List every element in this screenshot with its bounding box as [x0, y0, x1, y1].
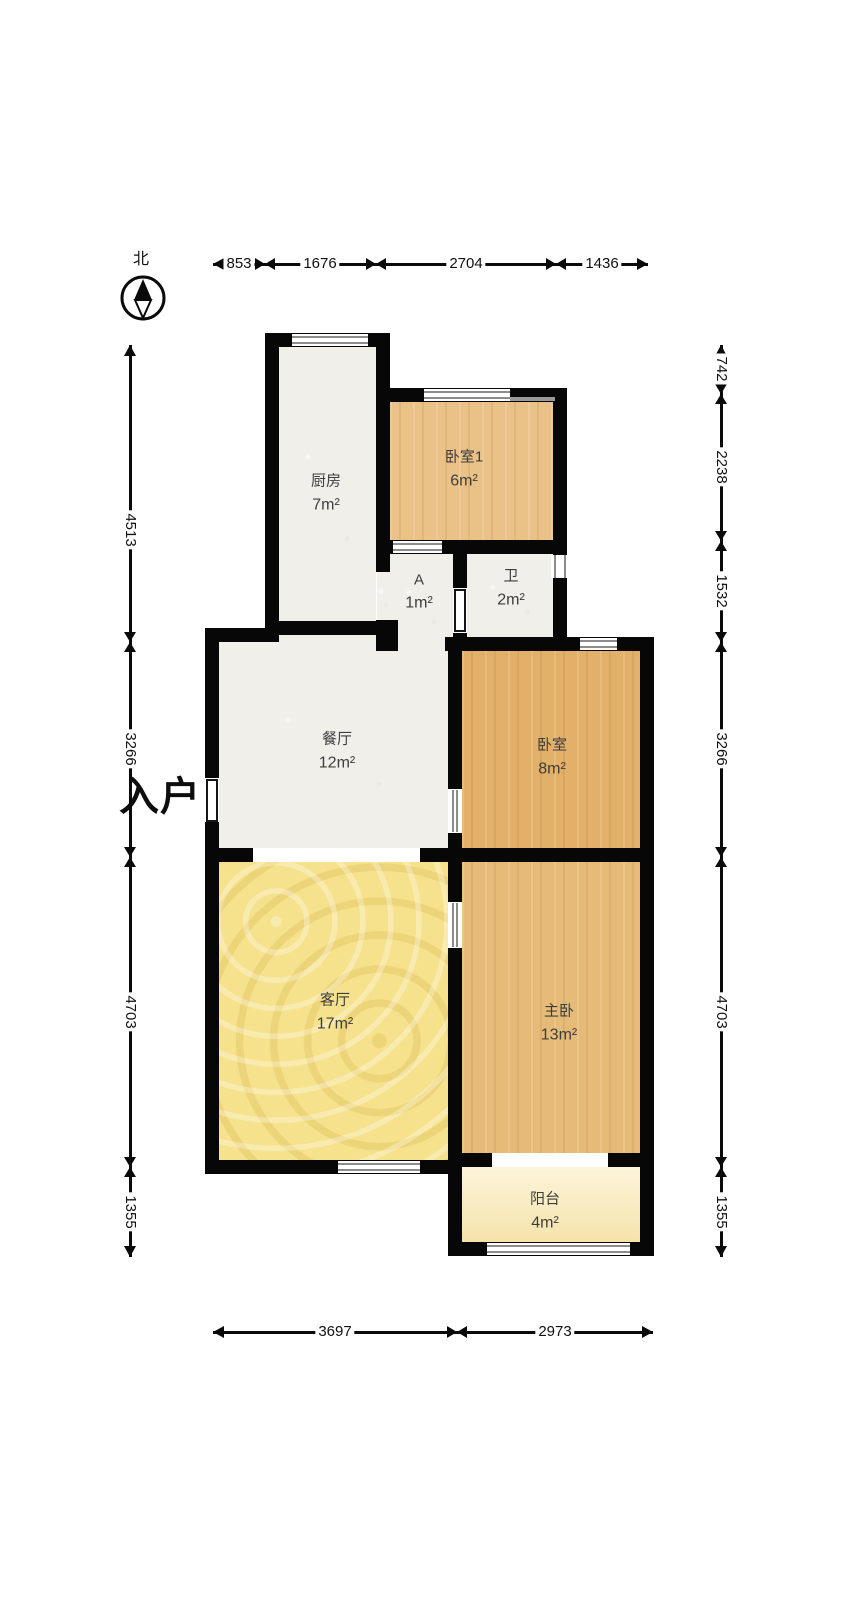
room-area: 1m²: [405, 595, 433, 613]
dim-label: 4703: [121, 992, 139, 1031]
room-name: 餐厅: [319, 728, 355, 749]
dim-tick-icon: [124, 642, 136, 652]
dim-tick-icon: [715, 394, 727, 404]
room-name: 主卧: [541, 1000, 577, 1021]
room-area: 17m²: [317, 1016, 353, 1034]
room-label-hall-a: A 1m²: [405, 572, 433, 613]
room-area: 12m²: [319, 755, 355, 773]
room-label-dining: 餐厅 12m²: [319, 728, 355, 773]
arrow-icon: [213, 258, 224, 270]
room-name: 客厅: [317, 989, 353, 1010]
room-name: 厨房: [311, 470, 341, 491]
arrow-icon: [124, 1246, 136, 1257]
room-name: 卧室: [537, 734, 567, 755]
compass-icon: [118, 262, 168, 324]
dim-tick-icon: [546, 258, 556, 270]
room-label-living: 客厅 17m²: [317, 989, 353, 1034]
dim-tick-icon: [715, 857, 727, 867]
room-name: 卧室1: [445, 446, 483, 467]
wall: [205, 848, 253, 862]
dim-label: 4703: [712, 992, 730, 1031]
bathroom-door: [454, 589, 466, 632]
arrow-icon: [637, 258, 648, 270]
wall: [445, 637, 654, 651]
dimension-line-left: [129, 345, 132, 1257]
arrow-icon: [124, 345, 136, 356]
room-name: 阳台: [530, 1188, 560, 1209]
bathroom-window: [551, 555, 569, 578]
dim-tick-icon: [715, 384, 727, 394]
room-label-master: 主卧 13m²: [541, 1000, 577, 1045]
wall: [453, 540, 467, 588]
bedroom1-sliding-door: [393, 541, 442, 553]
kitchen-window: [292, 334, 368, 346]
wall: [448, 651, 462, 789]
wall: [205, 1160, 462, 1174]
room-area: 4m²: [530, 1215, 560, 1233]
wall: [448, 848, 654, 862]
dim-label: 1676: [300, 255, 339, 273]
dimension-line-bottom: [213, 1331, 653, 1334]
wall: [376, 347, 390, 572]
room-label-bedroom: 卧室 8m²: [537, 734, 567, 779]
wall: [448, 833, 462, 862]
room-label-bedroom1: 卧室1 6m²: [445, 446, 483, 491]
dim-tick-icon: [715, 531, 727, 541]
dim-tick-icon: [124, 1167, 136, 1177]
wall: [205, 822, 219, 1174]
dim-tick-icon: [265, 258, 275, 270]
wall: [205, 628, 219, 778]
dim-label: 2704: [446, 255, 485, 273]
floor-plan-canvas: 北 入户: [0, 0, 868, 1604]
dim-tick-icon: [715, 1167, 727, 1177]
dim-label: 2973: [535, 1323, 574, 1341]
room-area: 8m²: [537, 761, 567, 779]
living-window: [338, 1161, 420, 1173]
wall: [608, 1153, 654, 1167]
arrow-icon: [642, 1326, 653, 1338]
dim-tick-icon: [457, 1326, 467, 1338]
dim-label: 1436: [582, 255, 621, 273]
room-area: 7m²: [311, 497, 341, 515]
room-area: 13m²: [541, 1027, 577, 1045]
window-sill: [510, 397, 555, 401]
dim-label: 853: [223, 255, 254, 273]
entrance-door: [206, 779, 218, 822]
dim-label: 2238: [712, 447, 730, 486]
dim-tick-icon: [376, 258, 386, 270]
kitchen-door-gap: [377, 572, 390, 620]
arrow-icon: [715, 1246, 727, 1257]
dim-tick-icon: [715, 1157, 727, 1167]
master-door: [449, 903, 461, 947]
dim-tick-icon: [124, 857, 136, 867]
bedroom1-window: [424, 389, 510, 401]
dim-tick-icon: [447, 1326, 457, 1338]
dim-tick-icon: [255, 258, 265, 270]
dim-label: 4513: [121, 510, 139, 549]
bedroom-window: [580, 638, 617, 650]
dim-label: 3697: [315, 1323, 354, 1341]
wall: [265, 333, 279, 642]
room-area: 6m²: [445, 473, 483, 491]
dim-tick-icon: [124, 1157, 136, 1167]
bedroom-door: [449, 790, 461, 832]
dim-tick-icon: [715, 541, 727, 551]
room-area: 2m²: [497, 592, 525, 610]
dim-label: 1532: [712, 571, 730, 610]
dim-label: 3266: [712, 729, 730, 768]
dim-label: 742: [712, 353, 730, 384]
dim-tick-icon: [715, 642, 727, 652]
dim-tick-icon: [124, 632, 136, 642]
dim-label: 1355: [712, 1192, 730, 1231]
room-label-balcony: 阳台 4m²: [530, 1188, 560, 1233]
room-label-kitchen: 厨房 7m²: [311, 470, 341, 515]
balcony-window: [487, 1243, 630, 1255]
dim-label: 1355: [121, 1192, 139, 1231]
room-name: A: [405, 572, 433, 589]
dim-tick-icon: [715, 847, 727, 857]
dim-tick-icon: [556, 258, 566, 270]
dim-tick-icon: [366, 258, 376, 270]
dim-tick-icon: [124, 847, 136, 857]
wall: [448, 948, 462, 1174]
dim-tick-icon: [715, 632, 727, 642]
room-name: 卫: [497, 565, 525, 586]
arrow-icon: [213, 1326, 224, 1338]
room-label-bathroom: 卫 2m²: [497, 565, 525, 610]
wall: [265, 621, 390, 635]
wall: [553, 388, 567, 651]
dim-label: 3266: [121, 729, 139, 768]
